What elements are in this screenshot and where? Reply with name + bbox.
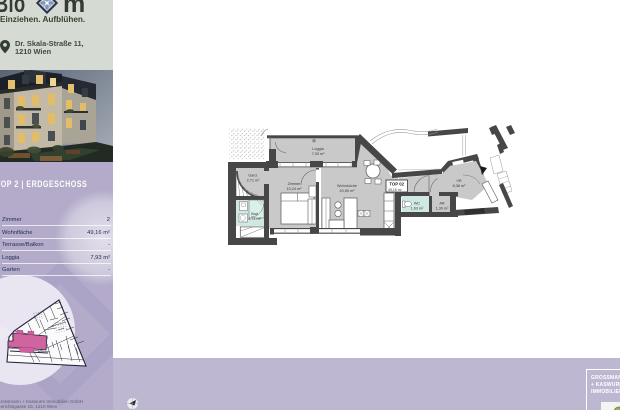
svg-text:10,24 m²: 10,24 m² — [287, 187, 303, 191]
svg-text:Gard.: Gard. — [248, 174, 258, 178]
svg-text:49,16 m²: 49,16 m² — [388, 188, 403, 192]
svg-text:8,36 m²: 8,36 m² — [453, 184, 467, 188]
svg-text:Bad: Bad — [251, 212, 258, 216]
svg-text:Wohnküche: Wohnküche — [337, 184, 357, 188]
svg-text:1,63 m²: 1,63 m² — [411, 207, 425, 211]
svg-text:7,93 m²: 7,93 m² — [312, 152, 326, 156]
svg-text:2,71 m²: 2,71 m² — [247, 179, 261, 183]
svg-text:VR: VR — [456, 179, 462, 183]
svg-text:WC: WC — [414, 202, 421, 206]
svg-text:1,30 m²: 1,30 m² — [436, 207, 450, 211]
svg-text:4,71 m²: 4,71 m² — [248, 217, 262, 221]
svg-text:Zimmer: Zimmer — [288, 182, 302, 186]
svg-text:Loggia: Loggia — [312, 147, 324, 151]
svg-text:AR: AR — [439, 202, 445, 206]
svg-text:20,59 m²: 20,59 m² — [340, 189, 356, 193]
svg-text:TOP 02: TOP 02 — [389, 181, 404, 186]
